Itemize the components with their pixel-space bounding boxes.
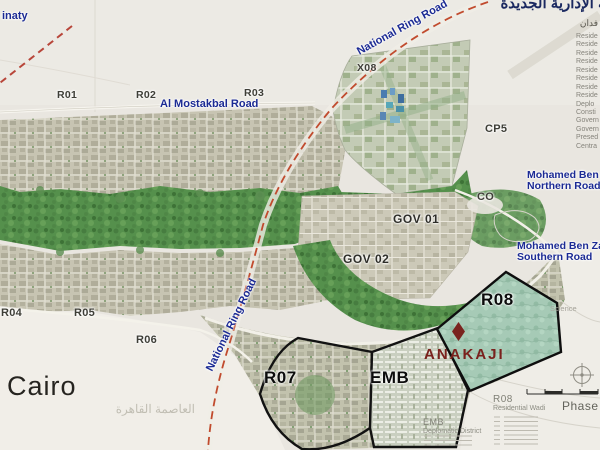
science-label: Science	[550, 305, 577, 313]
r08-note-title: R08	[493, 394, 545, 405]
r08-note-subtitle: Residential Wadi	[493, 405, 545, 413]
legend-item: Reside	[576, 67, 599, 75]
desert-north	[0, 0, 600, 105]
legend-item: Reside	[576, 33, 599, 41]
emb-note-title: EMB	[423, 418, 481, 428]
district-label-r04: R04	[1, 308, 22, 320]
district-label-r08: R08	[481, 291, 514, 309]
legend-item: Presed	[576, 134, 599, 142]
legend-item: Reside	[576, 41, 599, 49]
legend-item: Govern	[576, 126, 599, 134]
map-graphic	[0, 0, 600, 450]
district-label-gov02: GOV 02	[343, 253, 389, 266]
al-mostakbal-road-label: Al Mostakbal Road	[160, 99, 258, 111]
arabic-capital-title: العاصمة الإدارية الجديدة	[500, 0, 600, 12]
legend-item: Deplo	[576, 101, 599, 109]
anakaji-logo: ANAKAJI	[424, 347, 505, 363]
master-plan-map: inaty National Ring Road العاصمة الإداري…	[0, 0, 600, 450]
cairo-arabic-watermark: العاصمة القاهرة	[10, 403, 195, 416]
district-label-r05: R05	[74, 308, 95, 320]
cairo-watermark: Cairo	[7, 372, 77, 400]
district-label-r01: R01	[57, 90, 77, 101]
legend-item: Reside	[576, 92, 599, 100]
emb-note-subtitle: Deplomatic District	[423, 428, 481, 436]
legend-item: Govern	[576, 117, 599, 125]
legend-item: Reside	[576, 58, 599, 66]
district-label-cp5: CP5	[485, 124, 507, 136]
district-label-r07: R07	[264, 369, 297, 387]
district-label-r02: R02	[136, 90, 156, 101]
legend-item: Centra	[576, 143, 599, 151]
district-label-emb: EMB	[370, 369, 409, 387]
mbz-southern-line2: Southern Road	[517, 252, 600, 263]
legend-item: Reside	[576, 84, 599, 92]
r08-note: R08 Residential Wadi	[493, 394, 545, 413]
phase-label: Phase	[562, 400, 599, 413]
district-band-south	[0, 244, 330, 316]
mbz-southern-road-label: Mohamed Ben Zaye Southern Road	[517, 241, 600, 263]
district-label-gov01: GOV 01	[393, 213, 439, 226]
madinaty-road-label: inaty	[2, 11, 28, 23]
legend-header-arabic: فدان	[580, 19, 598, 28]
land-use-legend: Reside Reside Reside Reside Reside Resid…	[576, 33, 599, 151]
district-band-north	[0, 106, 345, 198]
district-label-r06: R06	[136, 335, 157, 347]
legend-item: Consti	[576, 109, 599, 117]
r07-park	[295, 375, 335, 415]
mbz-northern-line2: Northern Road	[527, 181, 600, 192]
legend-item: Reside	[576, 50, 599, 58]
district-label-co: CO	[477, 192, 494, 204]
emb-note: EMB Deplomatic District	[423, 418, 481, 436]
district-label-x08: X08	[357, 63, 377, 74]
mbz-northern-road-label: Mohamed Ben Za Northern Road	[527, 170, 600, 192]
legend-item: Reside	[576, 75, 599, 83]
